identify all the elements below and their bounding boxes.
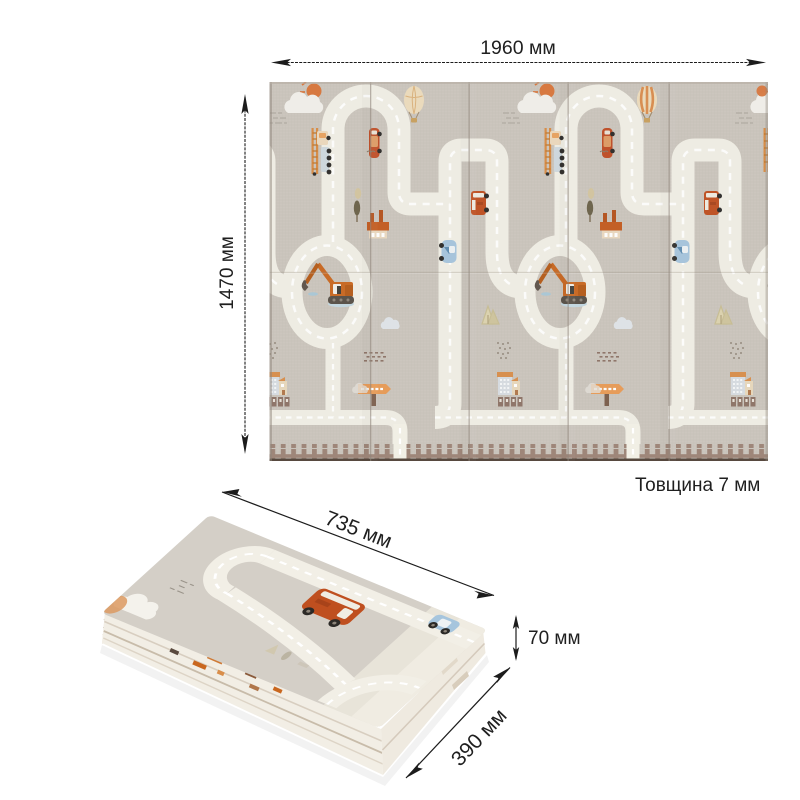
svg-text:1470 мм: 1470 мм [217,236,238,310]
svg-text:735 мм: 735 мм [322,507,395,553]
svg-text:390 мм: 390 мм [447,704,512,770]
svg-text:1960 мм: 1960 мм [480,37,556,59]
svg-text:70 мм: 70 мм [528,628,581,649]
svg-text:Товщина 7 мм: Товщина 7 мм [635,475,760,496]
